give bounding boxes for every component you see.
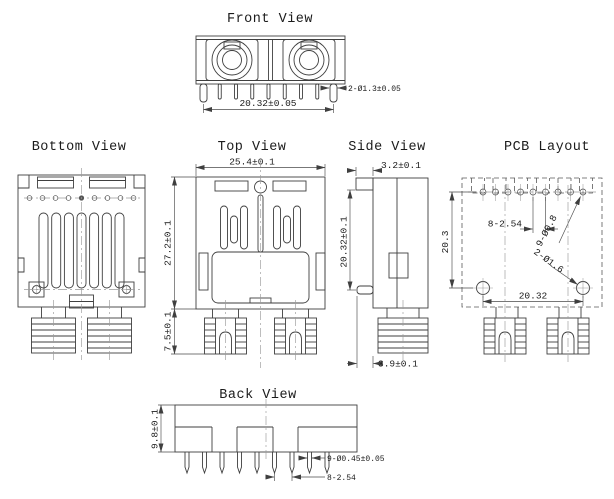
side-body [356, 178, 428, 308]
side-view-title: Side View [348, 140, 425, 155]
back-dim-pitch: 8-2.54 [266, 473, 356, 483]
front-dim-span: 20.32±0.05 [204, 98, 334, 113]
front-dim-span-label: 20.32±0.05 [239, 98, 296, 109]
pcb-dim-mount-holes-label: 2-Ø1.6 [531, 246, 565, 275]
pcb-signal-holes [468, 184, 596, 201]
pcb-dim-signal-holes: 9-Ø0.8 [534, 197, 581, 249]
side-dim-height-label: 20.32±0.1 [339, 216, 350, 268]
back-dim-height-label: 9.8±0.1 [150, 409, 161, 449]
side-dim-tab: 3.2±0.1 [347, 160, 421, 176]
front-body [196, 36, 345, 84]
front-dim-mount-pins: 2-Ø1.3±0.05 [321, 85, 401, 94]
side-jack-barrel [378, 300, 428, 362]
engineering-drawing-sheet: Front View [0, 0, 614, 499]
side-view: Side View 3.2±0.1 20 [339, 140, 429, 370]
bottom-pin-holes [24, 195, 140, 200]
back-dim-pitch-label: 8-2.54 [327, 474, 356, 483]
drawing-canvas: Front View [0, 0, 614, 499]
back-view: Back View 9.8±0.1 [150, 388, 385, 483]
pcb-dim-span-label: 20.32 [519, 291, 548, 302]
pcb-layout-title: PCB Layout [504, 140, 590, 155]
side-dim-tab-label: 3.2±0.1 [381, 160, 421, 171]
pcb-dim-mount-holes: 2-Ø1.6 [531, 246, 577, 284]
top-dim-height: 27.2±0.1 [163, 177, 197, 309]
back-dim-height: 9.8±0.1 [150, 405, 176, 452]
front-view: Front View [196, 12, 401, 113]
bottom-view: Bottom View [18, 140, 145, 360]
front-dim-mount-pins-label: 2-Ø1.3±0.05 [348, 85, 401, 94]
top-view-title: Top View [218, 140, 287, 155]
top-dim-height-label: 27.2±0.1 [163, 220, 174, 266]
top-dim-boss-label: 7.5±0.1 [163, 311, 174, 351]
side-dim-offset: 3.9±0.1 [347, 296, 418, 370]
bottom-view-title: Bottom View [32, 140, 127, 155]
top-view: Top View 25.4±0.1 [163, 140, 326, 368]
top-dim-boss: 7.5±0.1 [163, 309, 205, 354]
pcb-dim-signal-holes-label: 9-Ø0.8 [534, 213, 560, 249]
back-body [175, 399, 357, 460]
side-dim-height: 20.32±0.1 [339, 190, 357, 290]
pcb-dim-rows-label: 20.3 [440, 230, 451, 253]
front-view-title: Front View [227, 12, 313, 27]
back-dim-pin-dia-label: 9-Ø0.45±0.05 [327, 455, 385, 464]
side-dim-offset-label: 3.9±0.1 [378, 359, 418, 370]
back-pins [185, 452, 329, 473]
pcb-dim-rows: 20.3 [440, 192, 476, 288]
pcb-layout-view: PCB Layout [440, 140, 602, 362]
back-view-title: Back View [219, 388, 296, 403]
bottom-mount-posts [24, 282, 140, 308]
top-dim-width-label: 25.4±0.1 [229, 157, 275, 168]
